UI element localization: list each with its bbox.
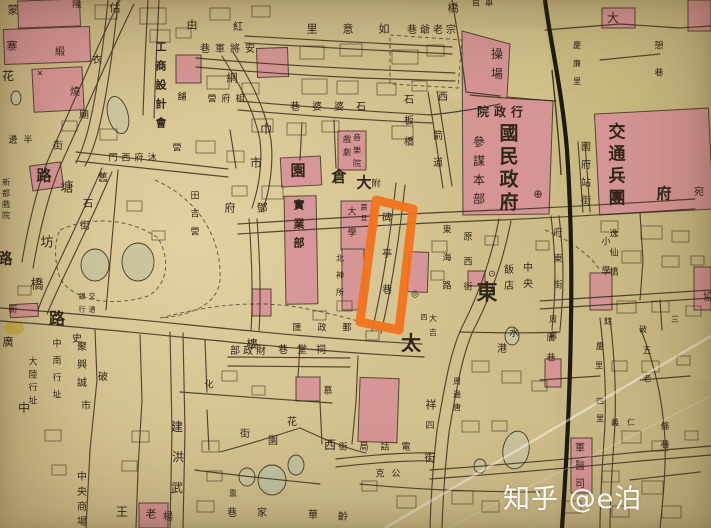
watermark: 知乎 @e泊	[503, 477, 642, 516]
map-photo: 蒙寨花隆緞衣燒廟估由紅里意如巷爺老宗橋巷軍將安舖營府相工商設計會網巾市門西府沐營…	[0, 0, 711, 528]
annotation-overlay	[0, 0, 711, 528]
highlight-rectangle	[360, 200, 413, 330]
